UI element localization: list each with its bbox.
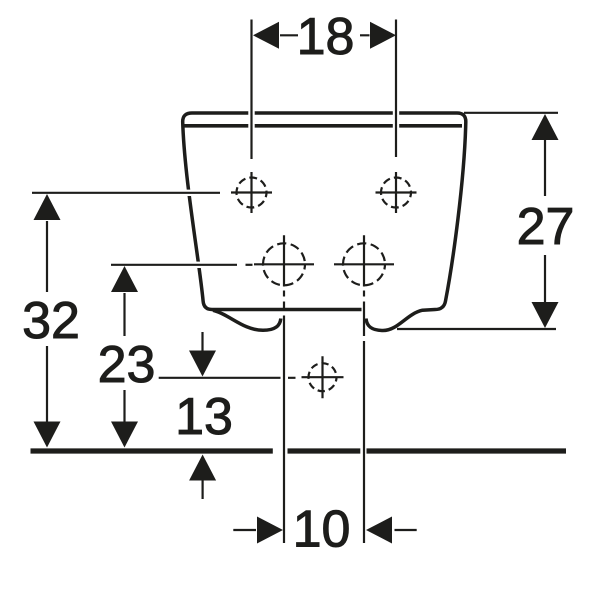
- svg-text:10: 10: [293, 501, 351, 559]
- svg-text:27: 27: [517, 198, 575, 256]
- svg-text:18: 18: [297, 8, 355, 66]
- svg-text:23: 23: [98, 336, 156, 394]
- svg-text:13: 13: [175, 388, 233, 446]
- svg-text:32: 32: [22, 292, 80, 350]
